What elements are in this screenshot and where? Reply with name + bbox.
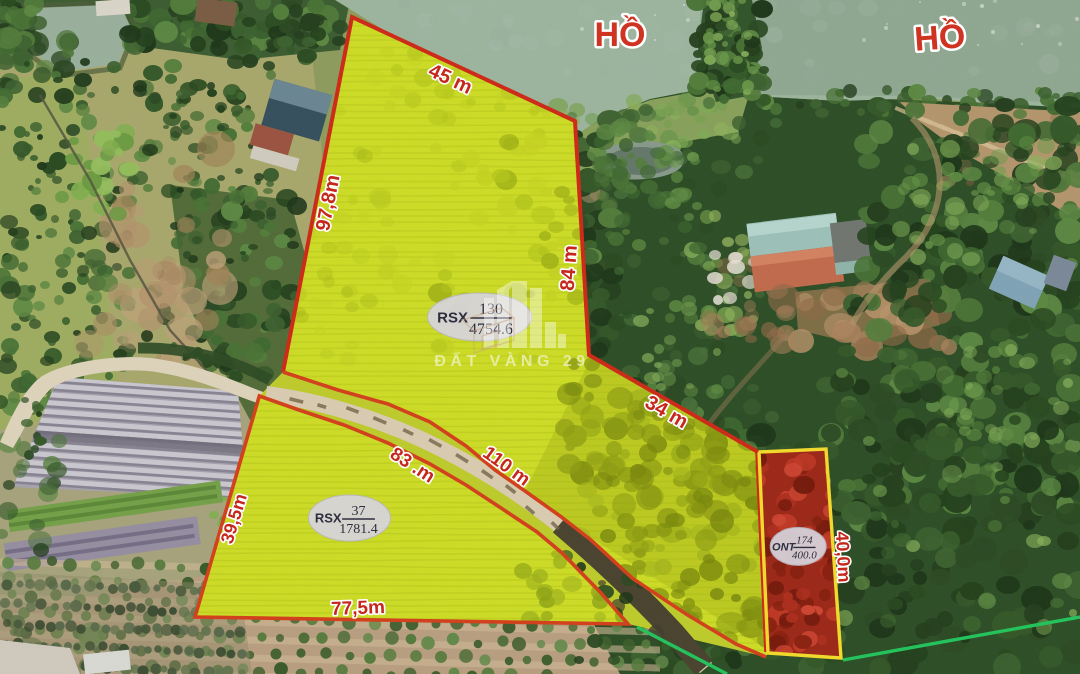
svg-text:1781.4: 1781.4 bbox=[339, 522, 378, 537]
svg-text:77,5m: 77,5m bbox=[331, 597, 386, 620]
svg-text:HỒ: HỒ bbox=[913, 17, 967, 58]
svg-text:RSX: RSX bbox=[315, 511, 342, 526]
svg-text:400.0: 400.0 bbox=[792, 549, 817, 561]
svg-text:ĐẤT VÀNG 29: ĐẤT VÀNG 29 bbox=[434, 351, 589, 370]
svg-text:37: 37 bbox=[352, 504, 366, 519]
svg-text:40,0m: 40,0m bbox=[832, 531, 855, 583]
svg-text:HỒ: HỒ bbox=[595, 16, 646, 54]
svg-text:84 m: 84 m bbox=[557, 244, 582, 291]
svg-text:174: 174 bbox=[796, 534, 813, 546]
svg-text:RSX: RSX bbox=[437, 309, 468, 326]
